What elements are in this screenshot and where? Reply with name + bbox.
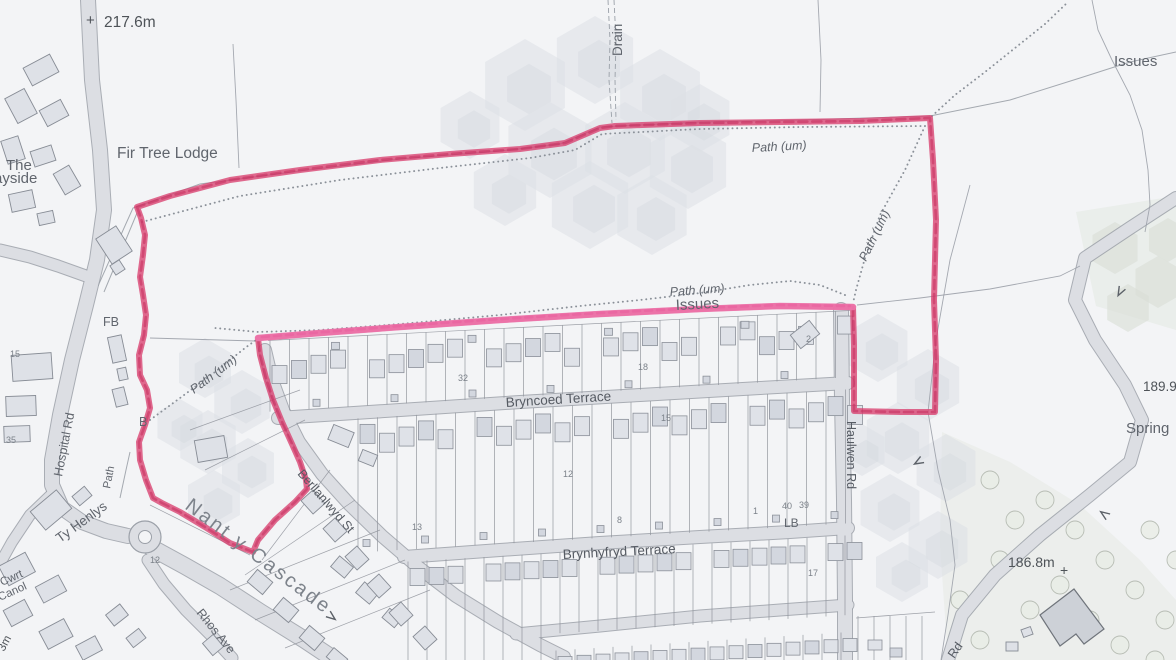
house-number: 15 <box>10 349 20 359</box>
plus-mark-186: + <box>1060 562 1068 578</box>
spot-height-186: 186.8m <box>1008 554 1055 570</box>
house-number: 8 <box>617 515 622 525</box>
house-number: 1 <box>753 506 758 516</box>
house-number: 13 <box>412 522 422 532</box>
label-wayside-partial: ayside <box>0 170 37 187</box>
house-number: 18 <box>638 362 648 372</box>
label-issues-mid: Issues <box>675 295 719 314</box>
house-number: 2 <box>806 334 811 344</box>
spot-height-217: 217.6m <box>104 14 156 31</box>
label-haulwen-rd: Haulwen Rd <box>844 421 858 489</box>
house-number: 17 <box>808 568 818 578</box>
house-number: 40 <box>782 501 792 511</box>
label-issues-top-right: Issues <box>1114 53 1157 70</box>
label-spring: Spring <box>1126 420 1169 437</box>
house-number: 12 <box>563 469 573 479</box>
house-number: 39 <box>799 500 809 510</box>
label-lb: LB <box>784 516 799 530</box>
house-number: 15 <box>661 413 671 423</box>
label-b-small: B <box>139 415 147 429</box>
house-number: 32 <box>458 373 468 383</box>
plus-mark-217: + <box>86 12 95 29</box>
os-site-plan-map: + 217.6m Fir Tree Lodge The ayside Drain… <box>0 0 1176 660</box>
house-number: 35 <box>6 435 16 445</box>
house-number: 12 <box>150 555 160 565</box>
label-fir-tree-lodge: Fir Tree Lodge <box>117 145 218 162</box>
label-path-um-top: Path (um) <box>751 138 807 155</box>
label-fb: FB <box>103 315 119 329</box>
label-drain: Drain <box>610 24 625 56</box>
spot-height-189: 189.9 <box>1143 379 1176 394</box>
